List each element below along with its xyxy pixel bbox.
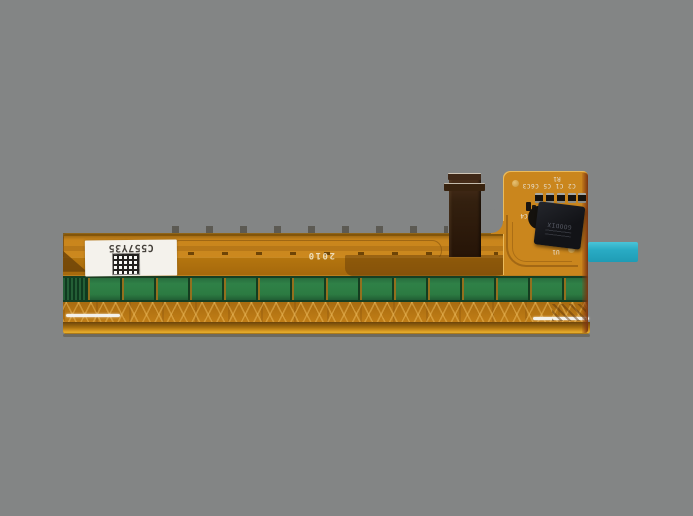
datamatrix-code-icon [113,254,139,274]
photo-background: C557Y35 2010 R1 C2 C1 C5 C6C3 C4 GOODIX … [0,0,693,516]
smd-capacitor [568,193,576,203]
smd-capacitor [557,193,565,203]
serial-text: C557Y35 [108,242,154,253]
trace-bundle-shadow [345,255,515,276]
serial-label-content: C557Y35 [85,240,177,277]
heater-element-strip [63,276,588,302]
ribbon-connector-cap [448,173,481,180]
ribbon-connector-flange [444,183,485,191]
trace-mesh-band [63,302,588,322]
serial-label: C557Y35 [85,240,177,277]
contact-pads-row [172,226,448,233]
inner-corner-fillet-mask [479,209,503,233]
silkscreen-u1: U1 [549,247,563,255]
connector-tab [588,242,638,262]
board-bottom-edge [63,322,590,334]
heater-comb-end [63,276,87,302]
silkscreen-capacitors: C2 C1 C5 C6C3 [518,181,580,189]
date-code-text: 2010 [303,248,339,260]
diagonal-trace-hatch [552,304,586,321]
glossy-highlight-left [66,314,120,317]
ic-chip: GOODIX [534,201,586,249]
board-drop-shadow [63,334,590,337]
smd-capacitor [578,193,586,203]
